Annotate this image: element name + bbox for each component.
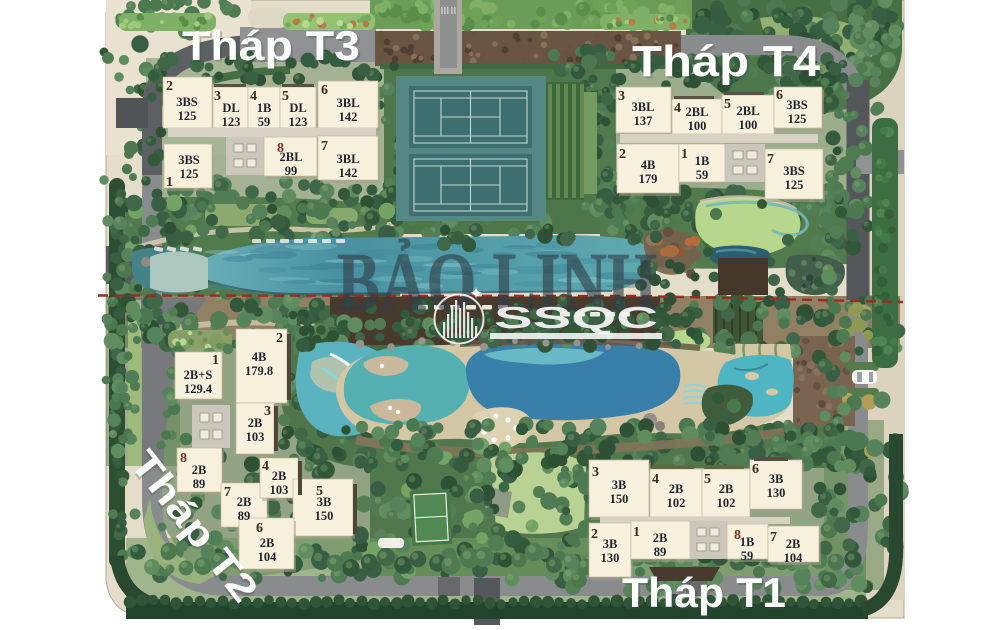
svg-text:2: 2 <box>276 331 283 346</box>
svg-text:59: 59 <box>258 115 271 129</box>
svg-text:3B: 3B <box>317 495 332 509</box>
svg-text:3BS: 3BS <box>786 98 808 112</box>
svg-text:179.8: 179.8 <box>245 364 273 378</box>
svg-text:2B: 2B <box>653 531 668 545</box>
svg-text:5: 5 <box>282 89 289 104</box>
svg-text:1B: 1B <box>695 154 710 168</box>
svg-text:100: 100 <box>688 119 707 133</box>
svg-text:129.4: 129.4 <box>184 382 213 396</box>
svg-text:2B: 2B <box>237 495 252 509</box>
svg-text:130: 130 <box>601 551 620 565</box>
svg-text:2B: 2B <box>786 537 801 551</box>
svg-text:3BL: 3BL <box>337 152 360 166</box>
svg-text:125: 125 <box>178 109 197 123</box>
svg-text:4B: 4B <box>252 350 267 364</box>
svg-text:103: 103 <box>246 430 265 444</box>
svg-text:4B: 4B <box>641 158 656 172</box>
svg-text:1: 1 <box>166 175 173 190</box>
svg-text:5: 5 <box>704 472 711 487</box>
svg-text:3BS: 3BS <box>178 153 200 167</box>
svg-text:2B: 2B <box>669 482 684 496</box>
svg-text:Tháp T4: Tháp T4 <box>632 37 821 86</box>
svg-text:3B: 3B <box>603 537 618 551</box>
svg-text:102: 102 <box>667 496 686 510</box>
svg-text:Tháp T1: Tháp T1 <box>622 569 786 616</box>
svg-text:89: 89 <box>654 545 667 559</box>
svg-text:142: 142 <box>339 110 358 124</box>
svg-text:89: 89 <box>193 477 206 491</box>
svg-text:3: 3 <box>618 89 625 104</box>
svg-text:150: 150 <box>610 492 629 506</box>
svg-text:3BS: 3BS <box>783 164 805 178</box>
svg-text:1: 1 <box>681 147 688 162</box>
svg-text:2: 2 <box>591 527 598 542</box>
svg-text:2B: 2B <box>248 416 263 430</box>
svg-text:7: 7 <box>321 139 328 154</box>
svg-text:3: 3 <box>214 89 221 104</box>
svg-text:6: 6 <box>321 83 328 98</box>
svg-text:137: 137 <box>634 114 653 128</box>
svg-text:6: 6 <box>752 462 759 477</box>
svg-text:125: 125 <box>180 167 199 181</box>
svg-text:3B: 3B <box>769 472 784 486</box>
svg-text:150: 150 <box>315 509 334 523</box>
svg-text:89: 89 <box>238 509 251 523</box>
svg-text:3BL: 3BL <box>632 100 655 114</box>
svg-text:125: 125 <box>788 112 807 126</box>
svg-text:DL: DL <box>289 101 306 115</box>
svg-text:DL: DL <box>222 101 239 115</box>
svg-text:5: 5 <box>724 97 731 112</box>
svg-text:SSQC: SSQC <box>494 300 658 335</box>
svg-text:103: 103 <box>270 483 289 497</box>
svg-text:104: 104 <box>784 551 804 565</box>
svg-text:1: 1 <box>633 525 640 540</box>
svg-text:3BL: 3BL <box>337 96 360 110</box>
svg-text:123: 123 <box>289 115 308 129</box>
svg-text:2B+S: 2B+S <box>184 368 213 382</box>
svg-text:3BS: 3BS <box>176 95 198 109</box>
svg-text:7: 7 <box>770 530 777 545</box>
svg-text:7: 7 <box>224 485 231 500</box>
svg-text:2: 2 <box>166 79 173 94</box>
svg-text:4: 4 <box>674 101 681 116</box>
svg-text:59: 59 <box>741 549 754 563</box>
svg-text:4: 4 <box>262 459 269 474</box>
svg-text:2B: 2B <box>192 463 207 477</box>
svg-text:123: 123 <box>222 115 241 129</box>
svg-text:Tháp T3: Tháp T3 <box>182 22 360 69</box>
svg-text:2B: 2B <box>260 536 275 550</box>
svg-text:99: 99 <box>285 164 298 178</box>
svg-text:2BL: 2BL <box>280 150 303 164</box>
svg-text:3: 3 <box>592 465 599 480</box>
svg-text:2B: 2B <box>719 482 734 496</box>
svg-text:130: 130 <box>767 486 786 500</box>
svg-text:104: 104 <box>258 550 278 564</box>
svg-text:100: 100 <box>739 118 758 132</box>
svg-text:8: 8 <box>180 451 187 466</box>
svg-text:2BL: 2BL <box>686 105 709 119</box>
svg-text:1B: 1B <box>740 535 755 549</box>
svg-text:102: 102 <box>717 496 736 510</box>
svg-text:59: 59 <box>696 168 709 182</box>
svg-text:6: 6 <box>776 88 783 103</box>
svg-text:179: 179 <box>639 172 658 186</box>
svg-text:3: 3 <box>264 404 271 419</box>
svg-text:2B: 2B <box>272 469 287 483</box>
svg-text:2BL: 2BL <box>737 104 760 118</box>
svg-text:6: 6 <box>256 521 263 536</box>
svg-text:125: 125 <box>785 178 804 192</box>
svg-text:1B: 1B <box>257 101 272 115</box>
svg-text:1: 1 <box>212 353 219 368</box>
svg-text:4: 4 <box>652 472 659 487</box>
svg-text:3B: 3B <box>612 478 627 492</box>
svg-text:2: 2 <box>619 147 626 162</box>
svg-text:142: 142 <box>339 166 358 180</box>
svg-text:7: 7 <box>767 152 774 167</box>
